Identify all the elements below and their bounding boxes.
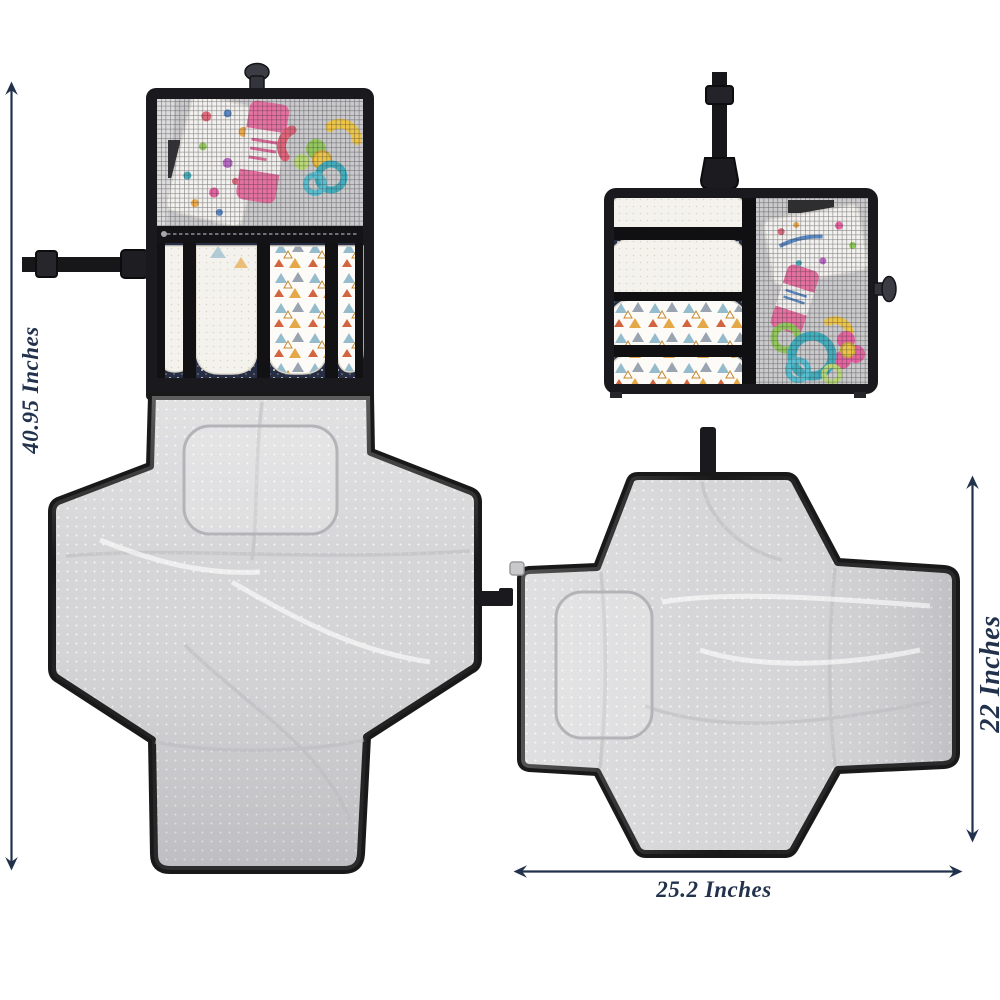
diaper-white-2 [196,246,257,374]
folded-mesh-panel [756,198,869,384]
view-open-spread [499,427,956,854]
depth-dimension-label: 22 Inches [975,589,1000,759]
zipper-pull [510,562,524,575]
product-dimension-image: 40.95 Inches 22 Inches 25.2 Inches [0,0,1000,1000]
zipper [157,226,363,243]
mat-pillow [184,426,337,534]
folded-diaper-panel [609,196,747,390]
view-open-front [22,64,512,871]
product-photo-collage [0,0,1000,1000]
hanging-knob [245,64,269,92]
changing-mat-spread [499,476,956,854]
diaper-print-1 [268,246,327,374]
mat-left-tab [499,588,513,606]
side-strap [22,250,150,278]
vertical-arrow-icon [0,80,24,872]
height-dimension-label: 40.95 Inches [15,305,47,475]
diaper-compartment [157,243,363,379]
width-dimension-label: 25.2 Inches [604,874,824,906]
mesh-pocket [157,93,363,228]
view-folded [604,72,896,398]
changing-mat-front [52,396,512,870]
hanging-strap [701,72,738,192]
mat-pillow [556,592,652,738]
